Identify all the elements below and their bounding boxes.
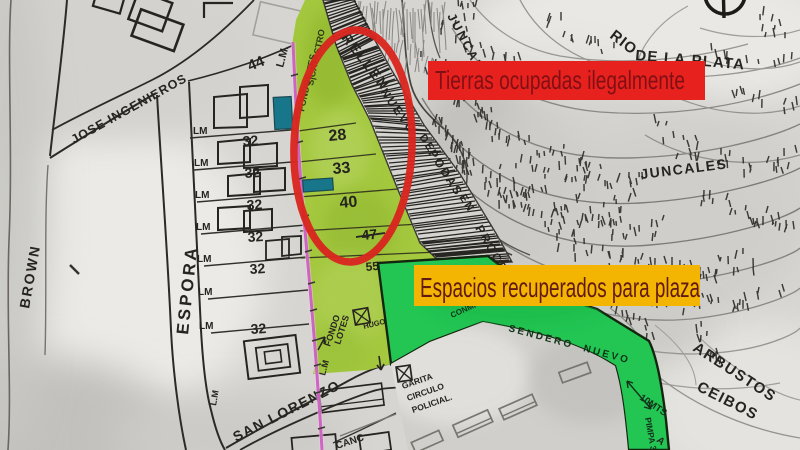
svg-text:LM: LM	[197, 254, 211, 265]
svg-text:33: 33	[332, 159, 351, 177]
svg-text:LM: LM	[196, 222, 210, 233]
svg-text:LM: LM	[198, 287, 212, 298]
svg-text:LM: LM	[194, 158, 208, 169]
svg-text:LM: LM	[193, 126, 207, 137]
svg-text:32: 32	[249, 260, 266, 277]
svg-text:32: 32	[250, 320, 267, 337]
svg-text:28: 28	[328, 126, 347, 144]
svg-text:Tierras ocupadas ilegalmente: Tierras ocupadas ilegalmente	[435, 65, 685, 95]
svg-text:LM: LM	[195, 190, 209, 201]
svg-text:40: 40	[339, 193, 358, 211]
svg-text:LM: LM	[199, 321, 213, 332]
svg-text:Espacios recuperados para plaz: Espacios recuperados para plaza	[420, 272, 700, 303]
